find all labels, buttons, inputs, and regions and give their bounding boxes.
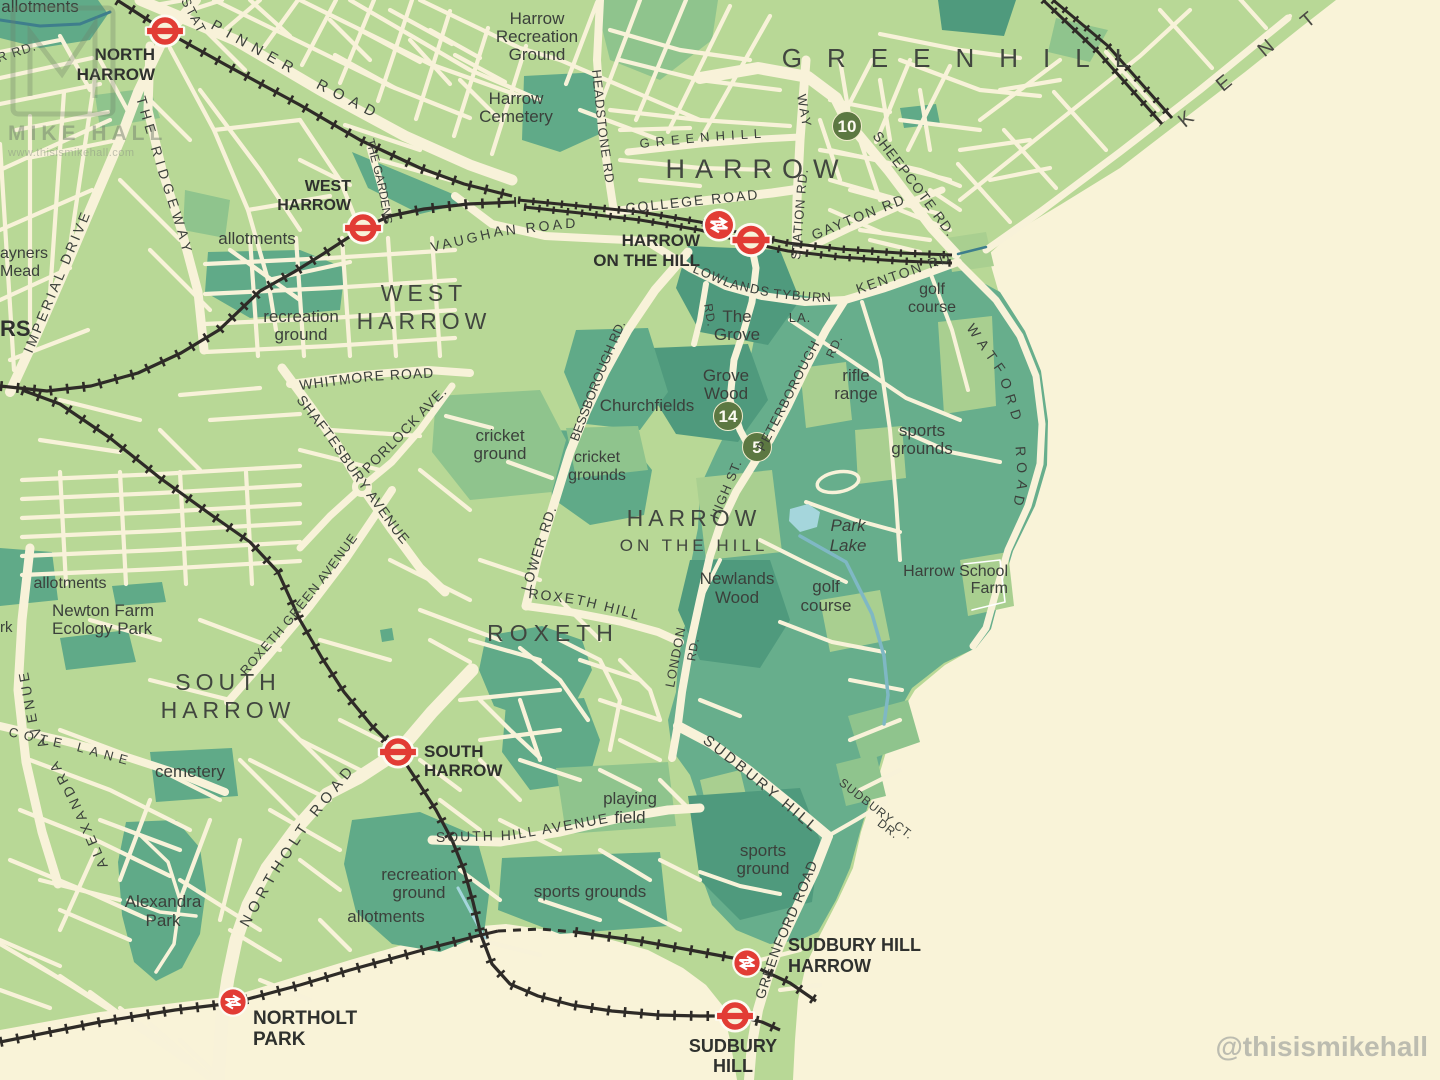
svg-text:golf: golf (919, 281, 945, 298)
svg-text:rifle: rifle (842, 366, 869, 385)
svg-text:recreation: recreation (381, 865, 457, 884)
svg-text:SOUTH: SOUTH (424, 742, 484, 761)
svg-text:recreation: recreation (263, 307, 339, 326)
svg-text:cricket: cricket (475, 426, 524, 445)
svg-text:@thisismikehall: @thisismikehall (1216, 1031, 1429, 1062)
svg-text:Wood: Wood (715, 588, 759, 607)
svg-text:sports: sports (899, 421, 945, 440)
svg-text:WEST: WEST (381, 280, 467, 306)
svg-text:ROXETH: ROXETH (487, 620, 619, 646)
svg-text:10: 10 (838, 117, 857, 136)
svg-text:HARROW: HARROW (277, 197, 352, 214)
svg-text:field: field (614, 808, 645, 827)
svg-text:Lake: Lake (830, 536, 867, 555)
svg-text:course: course (800, 596, 851, 615)
svg-text:14: 14 (719, 407, 738, 426)
svg-text:ground: ground (737, 859, 790, 878)
svg-text:SOUTH: SOUTH (175, 669, 281, 695)
svg-text:Park: Park (146, 911, 181, 930)
svg-text:sports: sports (740, 841, 786, 860)
svg-text:rk: rk (0, 619, 13, 636)
svg-text:HARROW: HARROW (622, 231, 701, 250)
svg-text:Churchfields: Churchfields (600, 396, 695, 415)
svg-text:playing: playing (603, 789, 657, 808)
svg-text:PARK: PARK (253, 1029, 306, 1050)
svg-text:sports grounds: sports grounds (534, 882, 646, 901)
svg-text:Ecology Park: Ecology Park (52, 619, 153, 638)
svg-text:range: range (834, 384, 877, 403)
svg-text:ON THE HILL: ON THE HILL (620, 536, 769, 555)
svg-text:Ground: Ground (509, 45, 566, 64)
svg-text:SUDBURY: SUDBURY (689, 1036, 777, 1056)
svg-text:ground: ground (393, 883, 446, 902)
svg-text:Harrow: Harrow (489, 89, 545, 108)
svg-text:HARROW: HARROW (161, 697, 296, 723)
svg-text:HARROW: HARROW (627, 505, 762, 531)
svg-text:Harrow: Harrow (510, 9, 566, 28)
svg-text:NORTH: NORTH (95, 45, 155, 64)
svg-text:Grove: Grove (703, 366, 749, 385)
svg-text:www.thisismikehall.com: www.thisismikehall.com (7, 147, 135, 159)
svg-text:Recreation: Recreation (496, 27, 578, 46)
svg-text:ground: ground (474, 444, 527, 463)
svg-text:Grove: Grove (714, 325, 760, 344)
svg-text:Mead: Mead (0, 263, 40, 280)
svg-text:Alexandra: Alexandra (125, 892, 202, 911)
svg-text:HILL: HILL (713, 1056, 753, 1076)
svg-text:allotments: allotments (218, 229, 295, 248)
svg-text:HARROW: HARROW (788, 956, 871, 976)
svg-text:grounds: grounds (568, 467, 626, 484)
svg-text:GREENHILL: GREENHILL (782, 43, 1154, 73)
svg-text:The: The (722, 307, 751, 326)
svg-text:ground: ground (275, 325, 328, 344)
svg-text:ON THE HILL: ON THE HILL (593, 251, 700, 270)
svg-text:SUDBURY HILL: SUDBURY HILL (788, 935, 921, 955)
svg-text:LA.: LA. (789, 310, 812, 325)
svg-text:Newton Farm: Newton Farm (52, 601, 154, 620)
svg-text:allotments: allotments (347, 907, 424, 926)
svg-text:HARROW: HARROW (666, 154, 849, 184)
svg-text:Wood: Wood (704, 384, 748, 403)
svg-text:course: course (908, 299, 956, 316)
svg-text:ayners: ayners (0, 245, 48, 262)
svg-text:allotments: allotments (34, 575, 107, 592)
svg-text:cemetery: cemetery (155, 762, 225, 781)
svg-text:MIKE HALL: MIKE HALL (8, 122, 167, 145)
svg-text:cricket: cricket (574, 449, 621, 466)
svg-text:HARROW: HARROW (357, 308, 492, 334)
svg-text:Harrow School: Harrow School (903, 563, 1008, 580)
svg-text:HARROW: HARROW (77, 65, 156, 84)
svg-text:Farm: Farm (971, 580, 1008, 597)
svg-text:NORTHOLT: NORTHOLT (253, 1008, 358, 1029)
svg-text:Newlands: Newlands (700, 569, 775, 588)
svg-text:Cemetery: Cemetery (479, 107, 553, 126)
svg-text:grounds: grounds (891, 439, 952, 458)
svg-text:HARROW: HARROW (424, 761, 503, 780)
svg-text:WEST: WEST (305, 178, 351, 195)
svg-text:Park: Park (831, 516, 867, 535)
svg-text:golf: golf (812, 577, 840, 596)
